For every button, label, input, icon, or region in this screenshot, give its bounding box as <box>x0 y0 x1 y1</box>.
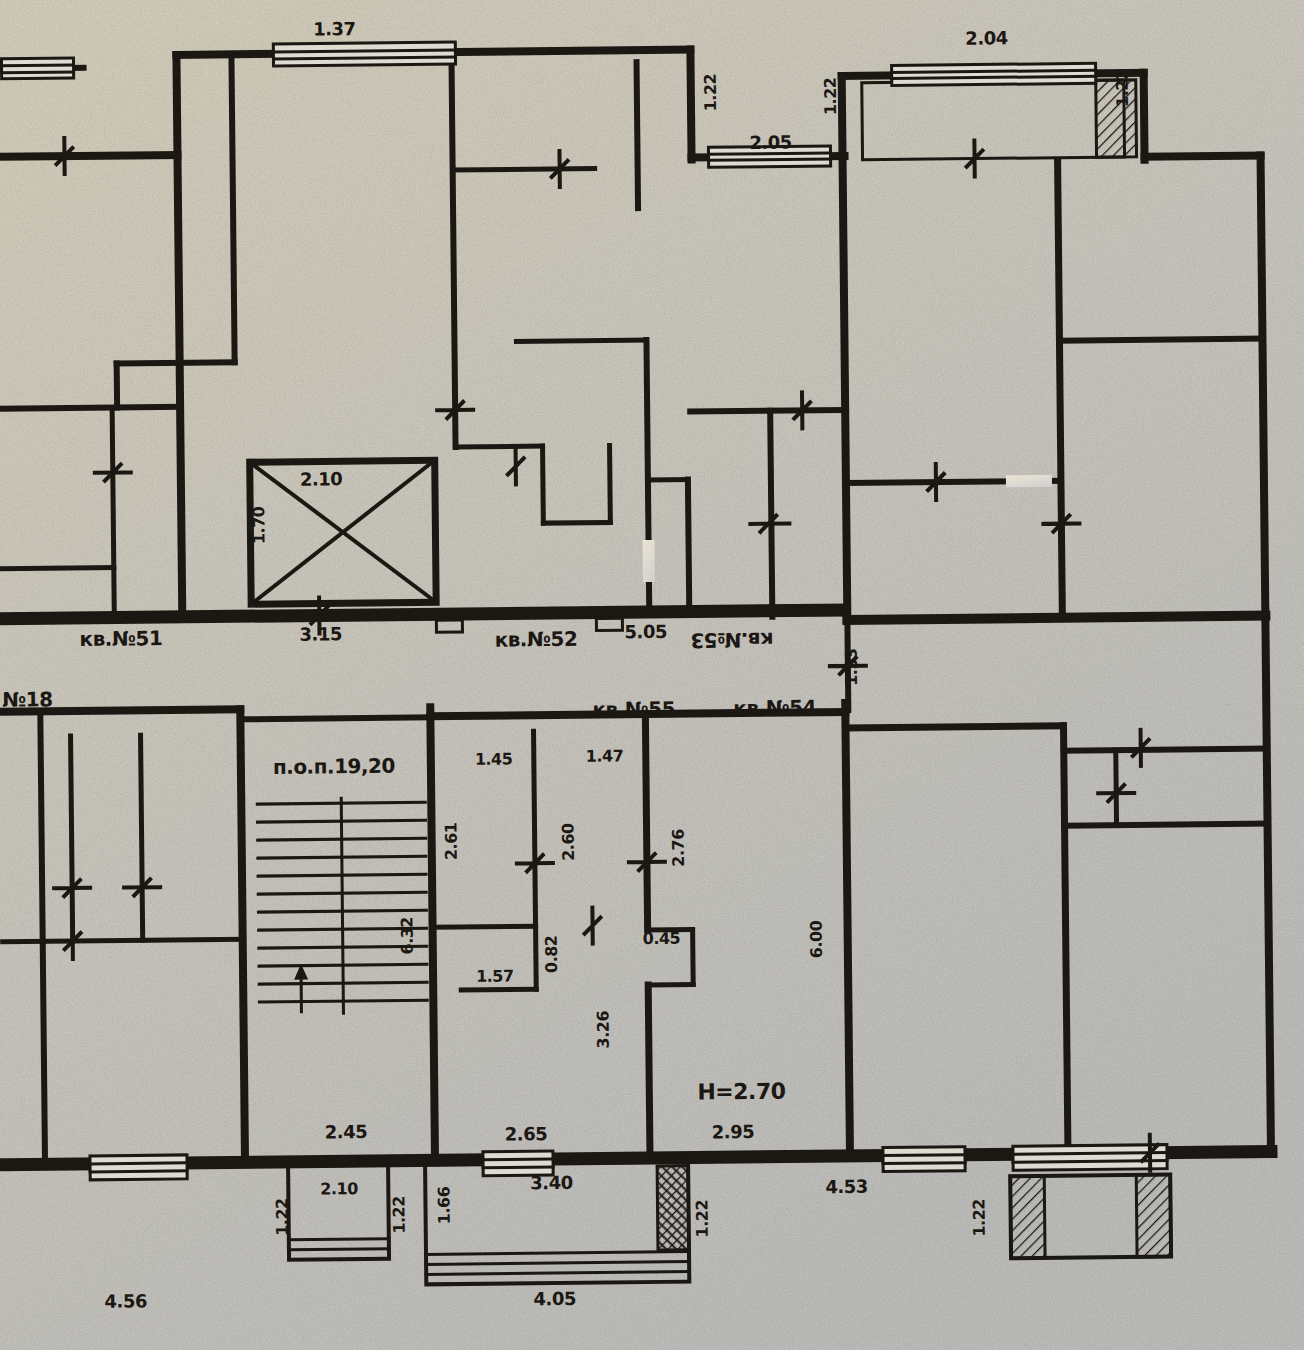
dim-label: 3.15 <box>299 623 342 644</box>
wall <box>842 76 848 620</box>
wall <box>693 930 694 985</box>
dim-label: 1.22 <box>389 1196 408 1234</box>
wall <box>117 362 235 363</box>
wall <box>1064 749 1267 751</box>
dim-label: 0.82 <box>542 935 561 973</box>
dim-label: 3.26 <box>593 1011 612 1049</box>
wall <box>770 411 772 617</box>
wall <box>534 731 536 926</box>
dim-label: 4.05 <box>533 1288 576 1309</box>
door-opening <box>643 540 655 582</box>
wall <box>1144 73 1145 160</box>
wall <box>231 54 234 362</box>
wall <box>690 410 842 412</box>
dim-label: 1.22 <box>272 1198 291 1236</box>
dim-label: 4.53 <box>825 1176 868 1197</box>
dim-label: 2.60 <box>558 823 577 861</box>
wall <box>112 408 114 618</box>
balcony-end-hatch <box>1010 1176 1045 1258</box>
wall <box>1116 750 1117 825</box>
dim-label: 2.10 <box>300 468 343 489</box>
wall <box>71 736 73 941</box>
wall <box>645 714 647 930</box>
dim-label: 2.61 <box>441 822 460 860</box>
balcony-end-hatch <box>1136 1175 1171 1257</box>
dim-label: 6.00 <box>807 920 826 958</box>
dim-label: 1.45 <box>475 749 513 768</box>
dim-label: 1.22 <box>701 74 720 112</box>
dim-label: 1.57 <box>476 966 514 985</box>
wall <box>141 735 143 940</box>
wall <box>240 709 245 1162</box>
door-opening <box>1006 475 1052 487</box>
wall <box>543 522 610 523</box>
wall <box>461 989 536 990</box>
dim-label: 4.56 <box>104 1290 147 1311</box>
apartment-label: кв.№53 <box>691 628 774 653</box>
dim-label: 1.22 <box>1113 69 1132 107</box>
wall <box>0 155 177 157</box>
window-band <box>273 42 455 66</box>
window-band <box>1 58 73 79</box>
wall <box>543 446 544 523</box>
window-band <box>892 63 1096 85</box>
wall <box>845 703 850 1156</box>
wall <box>516 340 646 341</box>
dim-label: 2.04 <box>965 27 1008 48</box>
apartment-label: кв.№52 <box>494 627 577 652</box>
wall <box>456 446 543 447</box>
wall <box>690 50 691 160</box>
ceiling-height-label: Н=2.70 <box>697 1079 786 1105</box>
wall <box>430 707 435 1160</box>
dim-label: 3.40 <box>530 1172 573 1193</box>
apartment-label: №18 <box>2 687 53 712</box>
wall <box>240 717 430 719</box>
window-band <box>90 1155 187 1180</box>
wall <box>648 985 650 1158</box>
wall <box>688 480 689 612</box>
wall <box>536 926 537 989</box>
wall <box>1145 156 1261 157</box>
dim-label: 6.32 <box>397 917 416 955</box>
dim-label: 2.10 <box>320 1179 358 1198</box>
wall <box>1065 824 1268 826</box>
wall <box>453 169 595 170</box>
wall <box>1064 726 1068 1154</box>
wall <box>0 568 114 569</box>
wall <box>452 62 456 447</box>
dim-label: 1.66 <box>434 1186 453 1224</box>
wall <box>3 939 243 942</box>
balcony-pier-hatch <box>657 1166 689 1250</box>
wall <box>0 610 844 619</box>
wall <box>610 445 611 522</box>
wall <box>433 926 536 927</box>
floor-plan-canvas: 1.37 2.05 2.04 2.10 3.15 5.05 1.45 1.47 … <box>0 0 1304 1350</box>
wall <box>847 616 1265 620</box>
dim-label: 2.65 <box>505 1123 548 1144</box>
dim-label: 1.37 <box>313 18 356 39</box>
wall <box>637 62 639 208</box>
dim-label: 2.76 <box>669 829 688 867</box>
dim-label: 1.53 <box>842 648 861 686</box>
dim-label: 5.05 <box>624 621 667 642</box>
window-band <box>883 1147 965 1172</box>
dim-label: 1.70 <box>249 506 268 544</box>
dim-label: 1.47 <box>586 746 624 765</box>
dim-label: 2.95 <box>712 1121 755 1142</box>
apartment-label: кв.№55 <box>592 697 675 722</box>
apartment-label: кв.№54 <box>733 695 816 720</box>
dim-label: 0.45 <box>643 929 681 948</box>
wall <box>846 726 1064 728</box>
dim-label: 1.22 <box>969 1199 988 1237</box>
wall <box>1059 339 1262 341</box>
wall <box>1058 161 1063 618</box>
common-area-label: п.о.п.19,20 <box>273 754 395 779</box>
wall <box>0 407 180 409</box>
dim-label: 2.05 <box>749 131 792 152</box>
dim-label: 1.22 <box>692 1200 711 1238</box>
apartment-label: кв.№51 <box>79 626 162 651</box>
dim-label: 1.22 <box>821 77 840 115</box>
dim-label: 2.45 <box>325 1121 368 1142</box>
